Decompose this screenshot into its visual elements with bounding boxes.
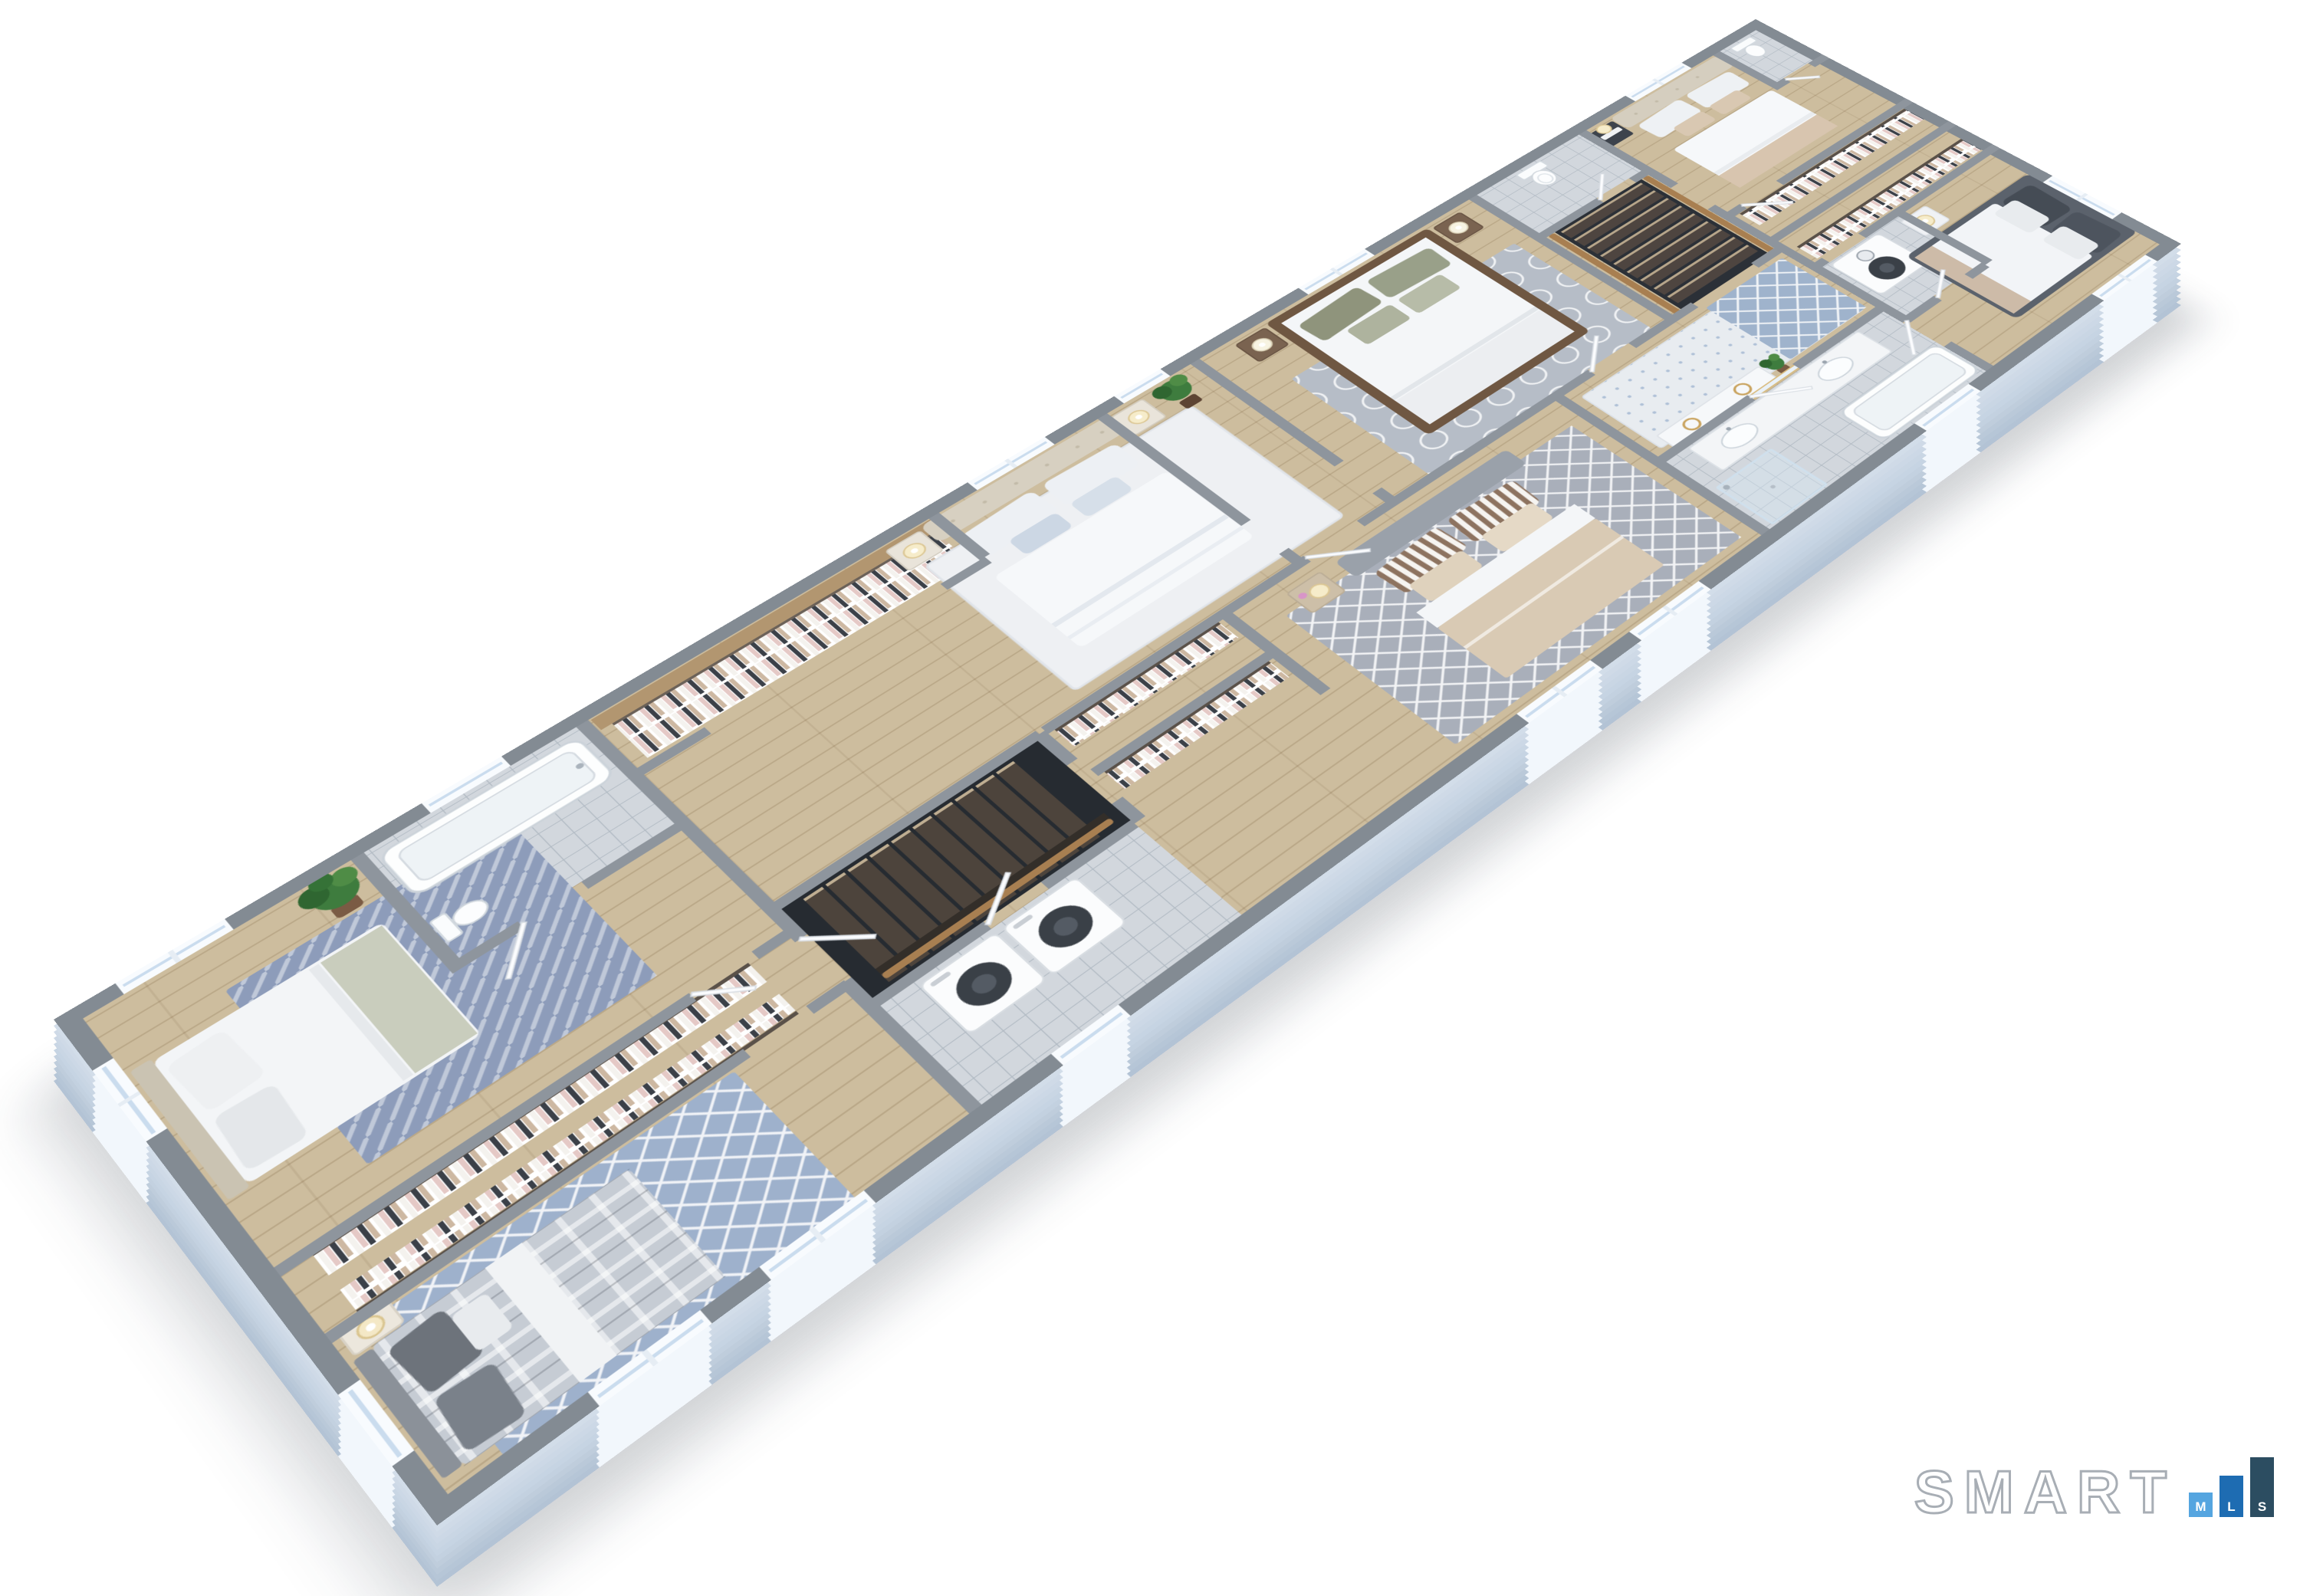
- floorplan-scene: [0, 0, 2300, 1534]
- brand-bar-l: L: [2219, 1476, 2243, 1517]
- brand-wordmark: SMART: [1914, 1468, 2177, 1517]
- brand-bar-m: M: [2189, 1493, 2213, 1517]
- smartmls-logo: SMART M L S: [1914, 1457, 2274, 1517]
- floorplan-top: [54, 19, 2181, 1525]
- brand-bar-s: S: [2250, 1457, 2274, 1517]
- brand-bars: M L S: [2189, 1457, 2274, 1517]
